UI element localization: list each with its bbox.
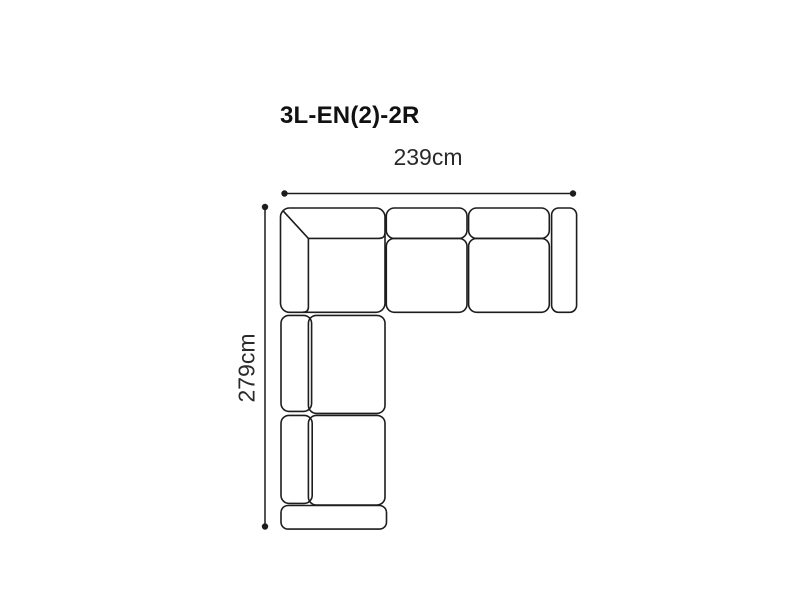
seat-unit-3-back-cushion [281,315,312,411]
width-dimension-line [281,190,576,196]
seat-unit-1 [386,208,467,312]
seat-unit-2-seat-cushion [469,238,550,312]
corner-unit-seat-seam [303,234,385,313]
seat-unit-1-back-cushion [386,208,467,238]
width-dimension-left-dot [281,190,287,196]
seat-unit-3 [281,315,385,413]
corner-unit-diagonal-seam [284,212,309,239]
height-dimension-top-dot [262,204,268,210]
seat-unit-4-back-cushion [281,415,312,503]
corner-unit [281,208,386,312]
bottom-armrest [281,506,387,530]
height-dimension-line [262,204,268,530]
width-dimension-right-dot [570,190,576,196]
sofa-outline [281,208,577,529]
seat-unit-1-seat-cushion [386,238,467,312]
height-dimension-bottom-dot [262,523,268,529]
seat-unit-2 [469,208,550,312]
seat-unit-3-seat-cushion [308,315,385,413]
corner-unit-body [281,208,386,312]
sofa-top-view-drawing [0,0,800,600]
seat-unit-2-back-cushion [469,208,550,238]
seat-unit-4-seat-cushion [308,415,385,505]
right-armrest [552,208,577,312]
seat-unit-4 [281,415,385,505]
product-dimension-diagram: 3L-EN(2)-2R 239cm 279cm [0,0,800,600]
